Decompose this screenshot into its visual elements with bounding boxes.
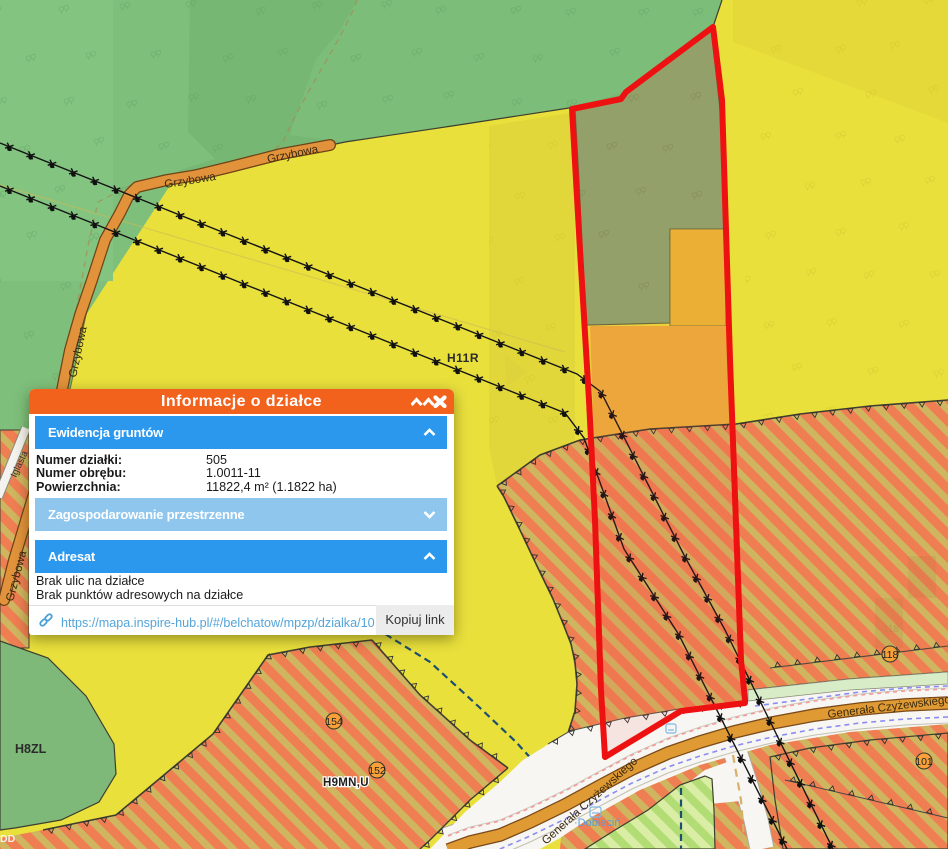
- svg-text:118: 118: [882, 649, 899, 661]
- svg-text:101: 101: [915, 775, 932, 786]
- svg-text:·Dobieciń: ·Dobieciń: [574, 817, 620, 829]
- svg-text:154: 154: [325, 716, 343, 728]
- svg-text:101: 101: [915, 756, 933, 768]
- svg-text:H11R: H11R: [447, 351, 479, 365]
- svg-text:H8ZL: H8ZL: [15, 742, 47, 756]
- svg-text:H9MN,U: H9MN,U: [323, 777, 369, 789]
- svg-text:154: 154: [297, 729, 314, 740]
- svg-text:152: 152: [368, 765, 386, 777]
- svg-text:DD: DD: [0, 833, 16, 845]
